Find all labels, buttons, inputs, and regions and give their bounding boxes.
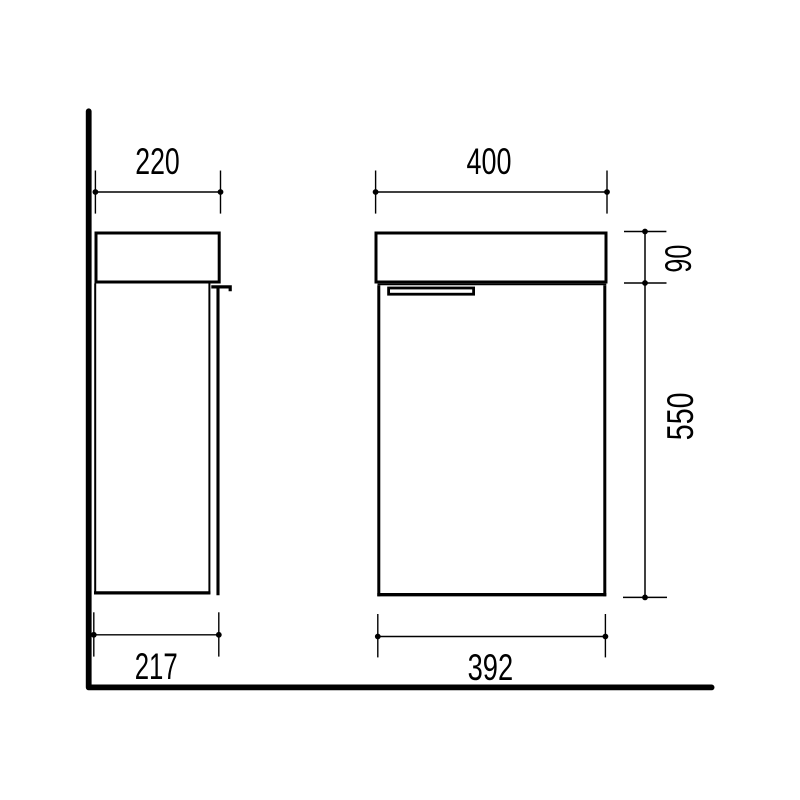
svg-text:220: 220 xyxy=(135,141,180,182)
svg-text:550: 550 xyxy=(660,392,701,440)
svg-text:90: 90 xyxy=(658,245,699,273)
svg-text:400: 400 xyxy=(467,141,512,182)
svg-text:217: 217 xyxy=(135,646,178,687)
svg-text:392: 392 xyxy=(468,647,514,688)
